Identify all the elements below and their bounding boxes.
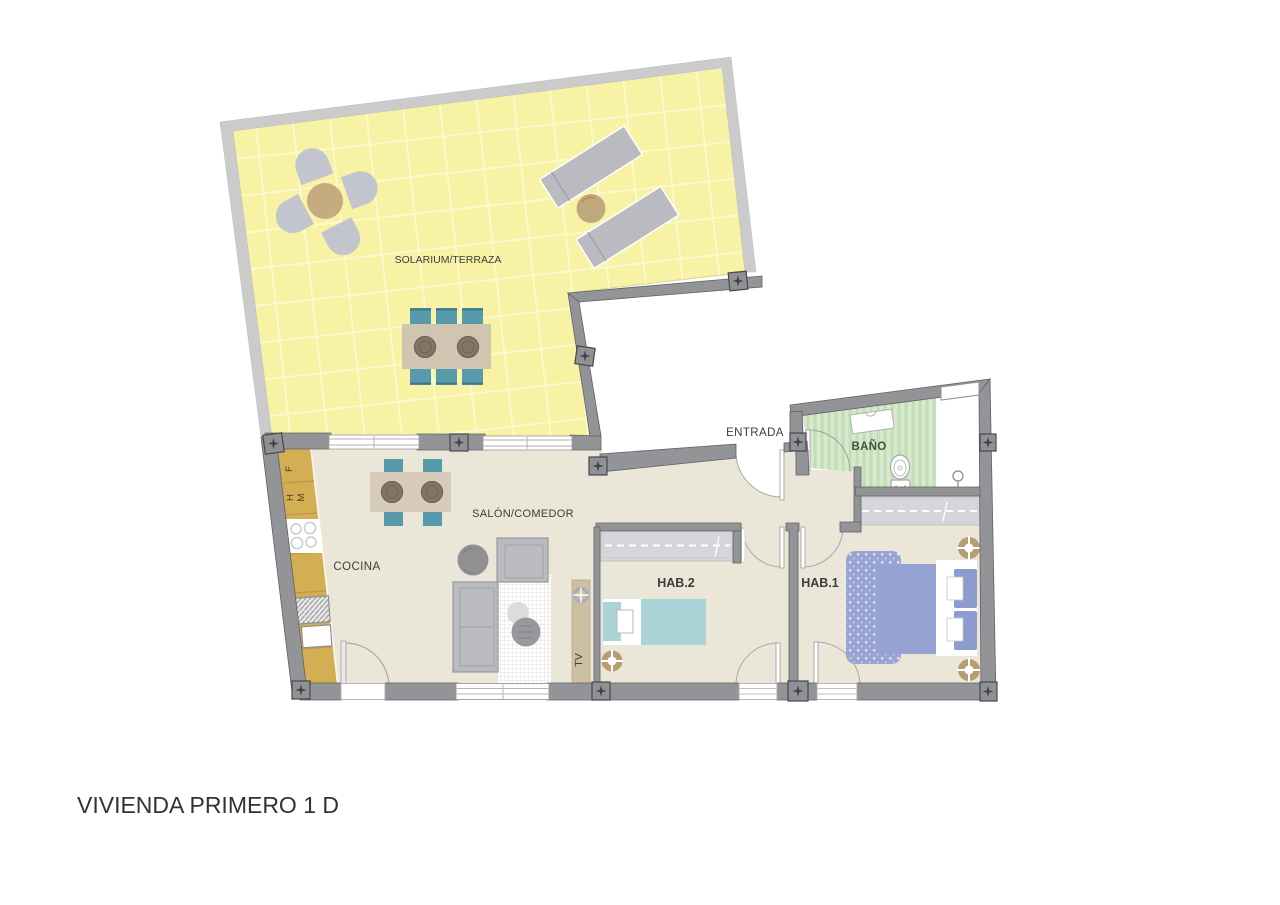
svg-text:H: H [285, 494, 296, 501]
svg-text:M: M [296, 493, 307, 501]
svg-text:ENTRADA: ENTRADA [726, 427, 784, 439]
svg-text:COCINA: COCINA [333, 561, 380, 573]
svg-text:HAB.2: HAB.2 [657, 576, 695, 590]
svg-text:VIVIENDA PRIMERO 1 D: VIVIENDA PRIMERO 1 D [77, 792, 339, 818]
svg-text:SOLARIUM/TERRAZA: SOLARIUM/TERRAZA [395, 254, 502, 266]
svg-text:SALÓN/COMEDOR: SALÓN/COMEDOR [472, 507, 574, 520]
svg-text:TV: TV [573, 653, 585, 666]
svg-text:HAB.1: HAB.1 [801, 576, 839, 590]
svg-text:BAÑO: BAÑO [851, 440, 886, 453]
svg-text:F: F [284, 466, 295, 472]
